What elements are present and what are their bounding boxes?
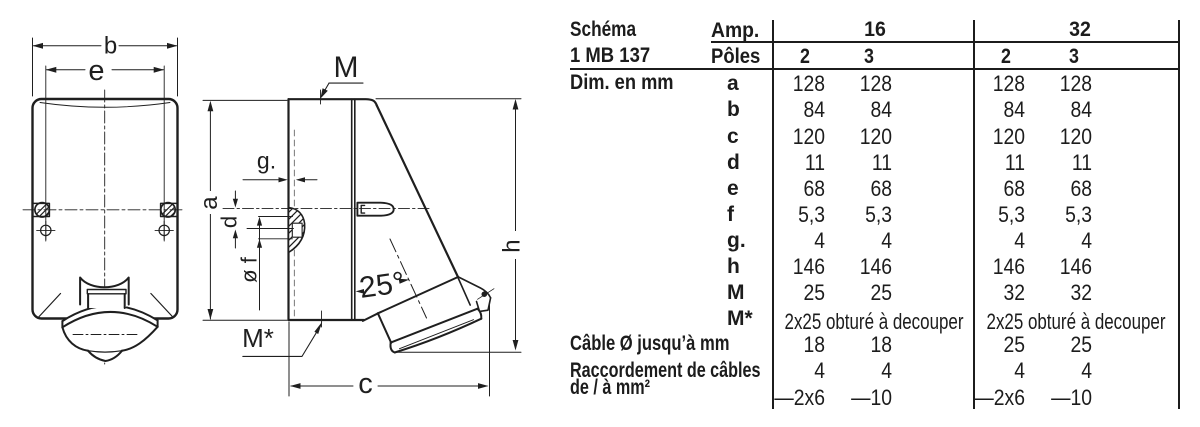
svg-text:e: e (88, 55, 104, 87)
svg-text:g.: g. (257, 148, 276, 174)
svg-text:b: b (104, 33, 117, 60)
svg-text:h: h (499, 239, 526, 252)
svg-text:M: M (334, 51, 359, 84)
svg-text:M*: M* (242, 323, 274, 353)
svg-text:c: c (358, 368, 373, 400)
svg-text:25°: 25° (357, 266, 407, 305)
svg-text:d: d (217, 216, 242, 228)
svg-text:a: a (196, 196, 223, 210)
svg-text:ø f: ø f (237, 256, 262, 283)
